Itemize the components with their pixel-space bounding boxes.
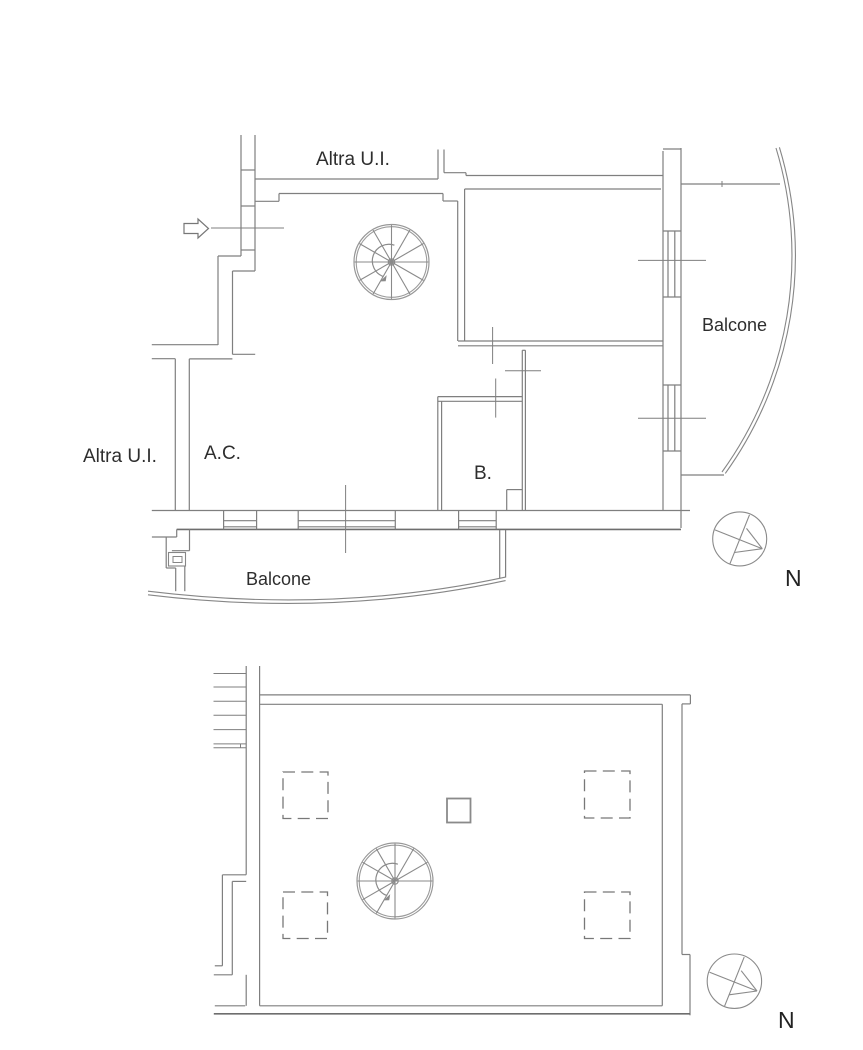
svg-text:N: N [785,565,802,591]
svg-text:B.: B. [474,463,492,484]
svg-text:Balcone: Balcone [702,315,767,335]
svg-text:A.C.: A.C. [204,443,241,464]
svg-text:N: N [778,1007,795,1033]
svg-text:Altra U.I.: Altra U.I. [316,149,390,170]
svg-text:Altra U.I.: Altra U.I. [83,446,157,467]
svg-text:Balcone: Balcone [246,569,311,589]
